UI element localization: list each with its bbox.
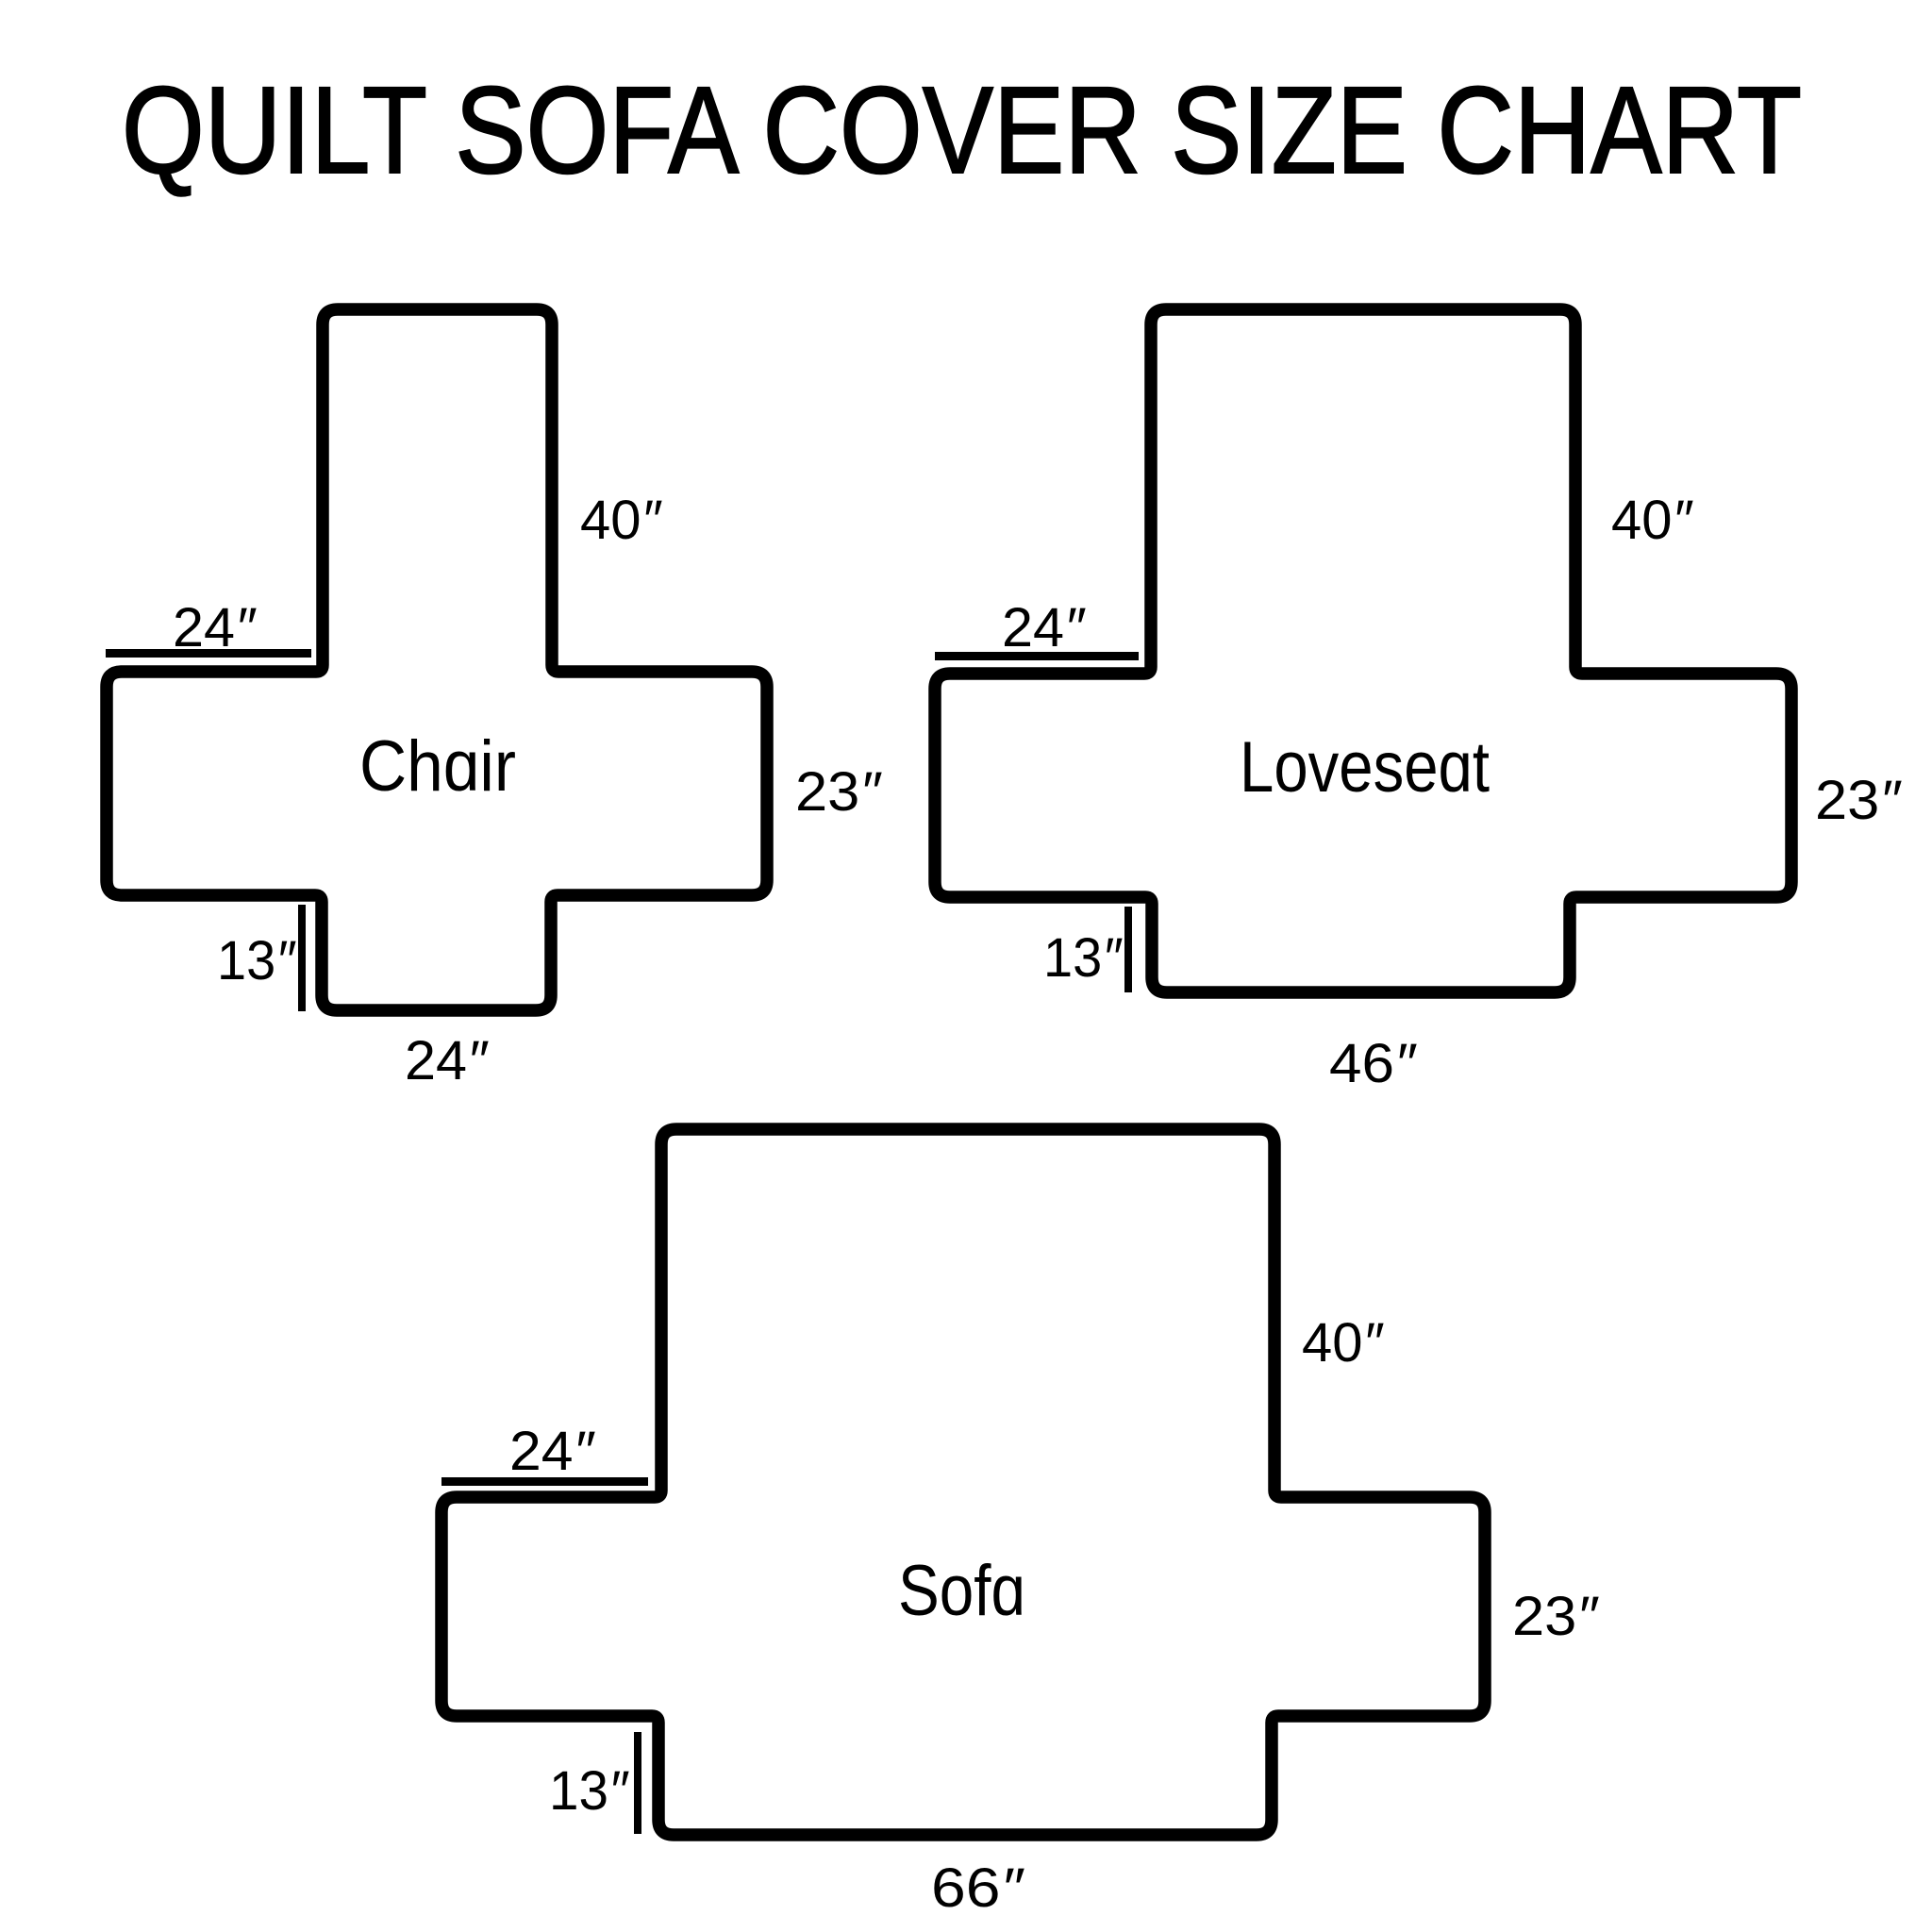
- svg-text:23″: 23″: [795, 761, 883, 823]
- svg-text:46″: 46″: [1329, 1033, 1418, 1094]
- svg-text:24″: 24″: [405, 1030, 490, 1091]
- svg-text:40″: 40″: [580, 490, 662, 551]
- svg-text:Sofɑ: Sofɑ: [898, 1551, 1025, 1631]
- svg-text:40″: 40″: [1302, 1312, 1384, 1374]
- svg-text:Loveseɑt: Loveseɑt: [1240, 727, 1490, 808]
- svg-text:40″: 40″: [1611, 490, 1693, 551]
- svg-text:Chɑir: Chɑir: [359, 726, 516, 807]
- svg-text:24″: 24″: [509, 1421, 596, 1482]
- svg-text:23″: 23″: [1512, 1586, 1600, 1647]
- svg-text:13″: 13″: [217, 930, 296, 991]
- svg-text:13″: 13″: [549, 1760, 629, 1822]
- svg-text:13″: 13″: [1043, 927, 1123, 989]
- svg-text:QUILT SOFA COVER SIZE CHART: QUILT SOFA COVER SIZE CHART: [122, 60, 1802, 199]
- svg-text:24″: 24″: [173, 597, 258, 658]
- svg-text:23″: 23″: [1815, 770, 1903, 831]
- svg-text:66″: 66″: [931, 1857, 1025, 1919]
- svg-text:24″: 24″: [1002, 597, 1087, 658]
